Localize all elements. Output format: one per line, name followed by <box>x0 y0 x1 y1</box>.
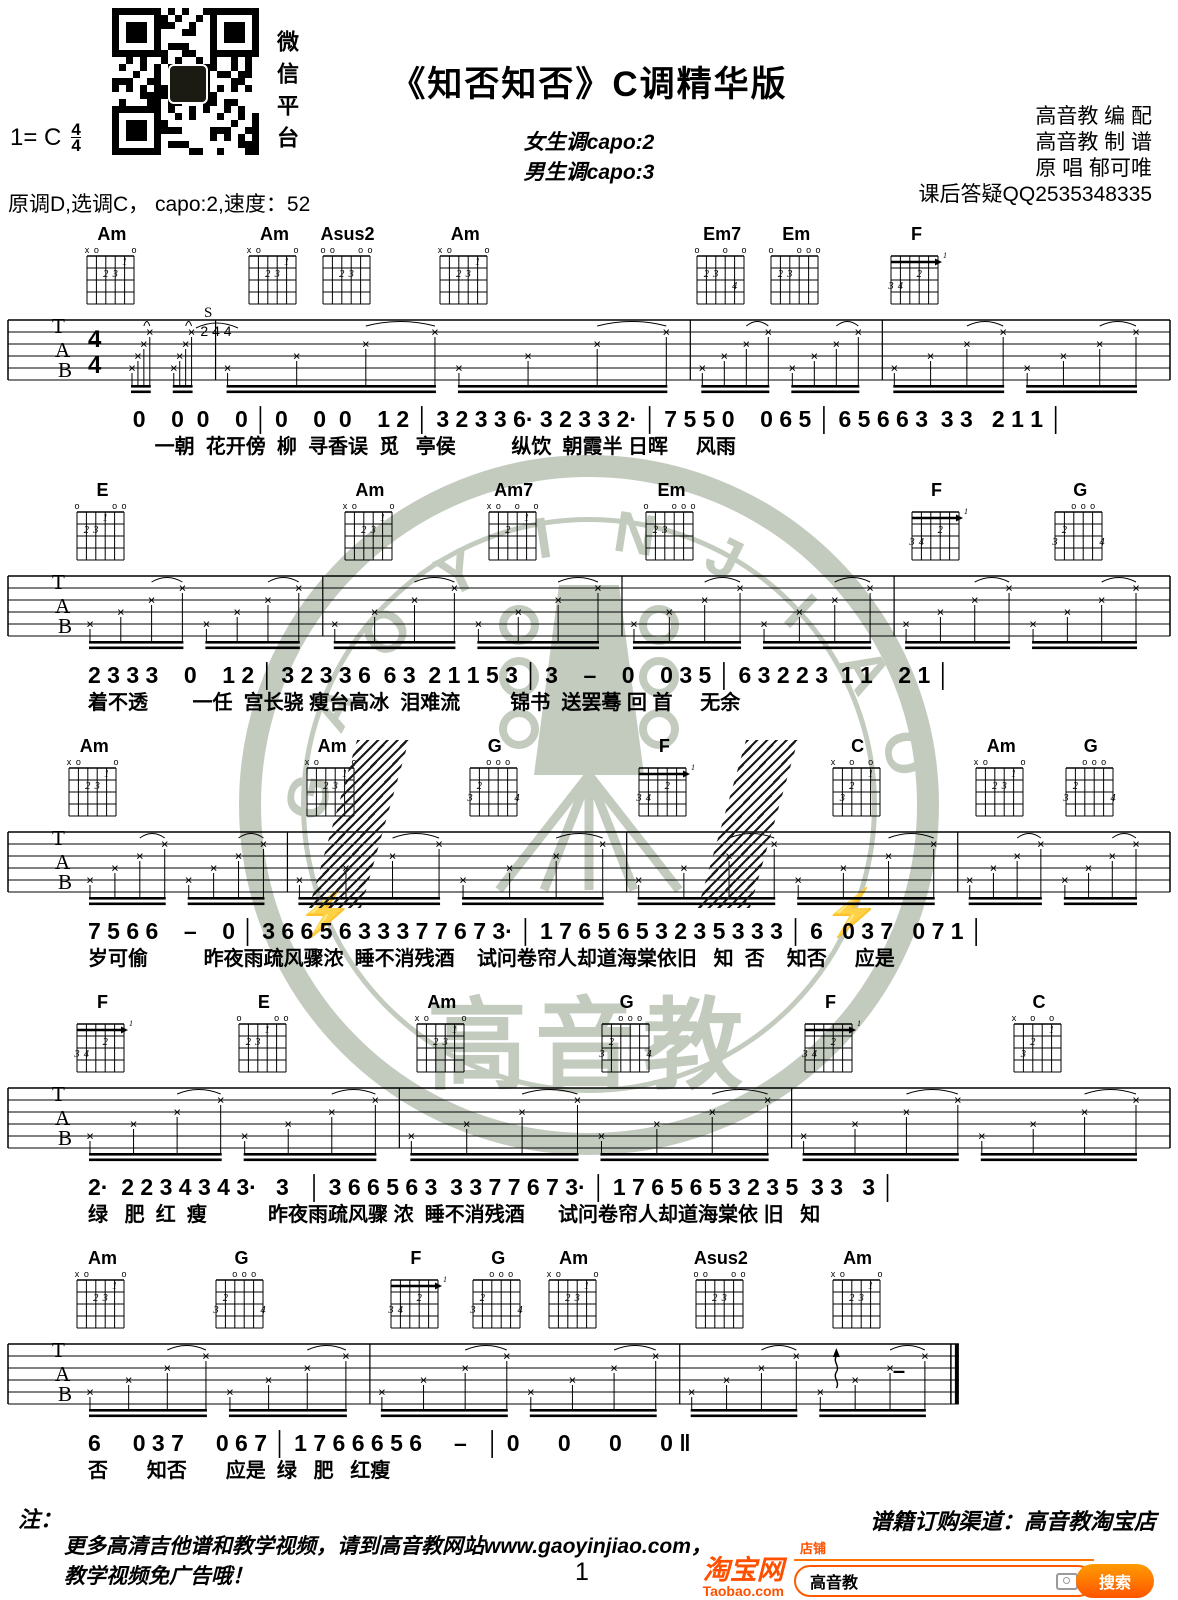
notation-text-row: 0 0 0 0 │ 0 0 0 1 2 │ 3 2 3 3 6· 3 2 3 3… <box>0 404 1178 480</box>
svg-text:o: o <box>627 1013 632 1023</box>
svg-text:4: 4 <box>514 793 520 804</box>
staff-row: TAB×××××××××××××××××××××××× <box>0 1074 1178 1170</box>
svg-text:o: o <box>868 757 873 767</box>
svg-text:o: o <box>256 245 261 255</box>
svg-text:x: x <box>343 501 348 511</box>
search-query: 高音教 <box>810 1569 858 1593</box>
chord-name: E <box>233 992 295 1012</box>
chord-diagram-Am: Amxoo123 <box>339 480 401 571</box>
chord-name: Em7 <box>691 224 753 244</box>
sheet-music-page: GAOYINJIAO ⚡ ⚡ 高音教 微信平台 《知否知否》C调精华版 女生调c… <box>0 0 1178 1600</box>
svg-text:3: 3 <box>93 525 99 536</box>
chord-grid: xoo123 <box>971 756 1031 822</box>
svg-text:3: 3 <box>254 1037 260 1048</box>
svg-text:o: o <box>769 245 774 255</box>
chord-grid: oooo23 <box>766 244 826 310</box>
tab-staff: TAB×××××××××××××××××××××××××××××××× <box>0 562 1178 658</box>
svg-text:o: o <box>367 245 372 255</box>
chord-name: Asus2 <box>690 1248 752 1268</box>
svg-text:o: o <box>1021 757 1026 767</box>
svg-text:o: o <box>618 1013 623 1023</box>
svg-text:4: 4 <box>398 1305 404 1316</box>
chord-diagram-F: F1234 <box>799 992 861 1083</box>
chord-diagram-G: Gooo234 <box>1060 736 1122 827</box>
svg-text:o: o <box>424 1013 429 1023</box>
svg-text:2: 2 <box>505 525 511 536</box>
chord-grid: ooo234 <box>692 244 752 310</box>
chord-diagram-Am: Amxoo123 <box>970 736 1032 827</box>
svg-text:o: o <box>283 1013 288 1023</box>
chord-name: Am <box>243 224 305 244</box>
svg-text:o: o <box>1090 501 1095 511</box>
notation-text-row: 7 5 6 6 – 0 │ 3 6 6 5 6 3 3 3 7 7 6 7 3·… <box>0 916 1178 992</box>
svg-text:o: o <box>682 501 687 511</box>
svg-text:o: o <box>556 1269 561 1279</box>
chord-row: Amxoo123Gooo234F1234Gooo234Amxoo123Asus2… <box>0 1246 1178 1330</box>
svg-text:4: 4 <box>88 326 102 353</box>
svg-text:3: 3 <box>387 1305 393 1316</box>
chord-name: Am <box>411 992 473 1012</box>
chord-diagram-E: Eooo123 <box>71 480 133 571</box>
time-signature: 4 4 <box>71 122 80 153</box>
chord-grid: ooo234 <box>211 1268 271 1334</box>
svg-text:o: o <box>849 757 854 767</box>
chord-diagram-Am: Amxoo123 <box>411 992 473 1083</box>
svg-text:2: 2 <box>917 269 923 280</box>
svg-text:o: o <box>495 501 500 511</box>
svg-text:o: o <box>695 245 700 255</box>
svg-text:o: o <box>816 245 821 255</box>
svg-text:o: o <box>505 757 510 767</box>
chord-diagram-G: Gooo234 <box>467 1248 529 1339</box>
svg-text:x: x <box>486 501 491 511</box>
svg-text:4: 4 <box>1110 793 1116 804</box>
lyrics-line: 一朝 花开傍 柳 寻香误 觅 亭侯 纵饮 朝霞半 日晖 风雨 <box>0 434 1178 460</box>
chord-grid: 1234 <box>800 1012 860 1078</box>
notation-text-row: 2· 2 2 3 4 3 4 3· 3 │ 3 6 6 5 6 3 3 3 7 … <box>0 1172 1178 1248</box>
svg-text:x: x <box>415 1013 420 1023</box>
note-label: 注： <box>18 1502 62 1534</box>
svg-text:x: x <box>830 1269 835 1279</box>
chord-name: Am <box>63 736 125 756</box>
svg-text:o: o <box>75 501 80 511</box>
svg-text:o: o <box>252 1269 257 1279</box>
tab-staff: TAB×××××××××××××××××××××××××××××××× <box>0 818 1178 914</box>
taobao-logo-cn: 淘宝网 <box>703 1557 784 1584</box>
svg-text:o: o <box>723 245 728 255</box>
jianpu-melody-line: 2· 2 2 3 4 3 4 3· 3 │ 3 6 6 5 6 3 3 3 7 … <box>0 1172 1178 1202</box>
chord-grid: xoo123 <box>340 500 400 566</box>
svg-text:x: x <box>974 757 979 767</box>
svg-text:B: B <box>58 1126 72 1150</box>
chord-name: F <box>885 224 947 244</box>
taobao-slogan: 谱籍订购渠道：高音教淘宝店 <box>870 1504 1156 1536</box>
svg-text:3: 3 <box>720 1293 726 1304</box>
svg-text:o: o <box>233 1269 238 1279</box>
tempo-line: 原调D,选调C， capo:2,速度：52 <box>8 188 310 218</box>
svg-text:B: B <box>58 358 72 382</box>
svg-text:2: 2 <box>608 1037 614 1048</box>
chord-diagram-Am7: Am7xooo12 <box>483 480 545 571</box>
svg-text:o: o <box>495 757 500 767</box>
tab-staff: TAB×××××××××××××××××××××××× <box>0 1074 1178 1170</box>
svg-text:3: 3 <box>857 1293 863 1304</box>
chord-diagram-F: F1234 <box>71 992 133 1083</box>
taobao-logo-en: Taobao.com <box>703 1584 784 1598</box>
search-input[interactable]: 高音教 <box>794 1565 1094 1597</box>
svg-text:3: 3 <box>786 269 792 280</box>
svg-text:o: o <box>839 1269 844 1279</box>
svg-text:1: 1 <box>964 507 967 516</box>
chord-diagram-G: Gooo234 <box>210 1248 272 1339</box>
svg-text:o: o <box>122 501 127 511</box>
chord-name: G <box>1049 480 1111 500</box>
svg-text:1: 1 <box>122 257 127 268</box>
chord-name: G <box>210 1248 272 1268</box>
svg-text:o: o <box>485 245 490 255</box>
svg-text:2: 2 <box>361 525 367 536</box>
chord-grid: xoo123 <box>544 1268 604 1334</box>
svg-text:2: 2 <box>323 781 329 792</box>
chord-diagram-C: Cxoo123 <box>827 736 889 827</box>
chord-grid: xoo123 <box>828 1268 888 1334</box>
tab-system-4: F1234Eooo123Amxoo123Gooo234F1234Cxoo123T… <box>0 990 1178 1246</box>
qr-center-logo <box>168 64 208 104</box>
svg-text:o: o <box>1030 1013 1035 1023</box>
svg-text:3: 3 <box>888 281 894 292</box>
svg-text:3: 3 <box>636 793 642 804</box>
svg-text:2: 2 <box>704 269 710 280</box>
svg-text:o: o <box>877 1269 882 1279</box>
svg-text:4: 4 <box>918 537 924 548</box>
svg-text:o: o <box>389 501 394 511</box>
chord-diagram-F: F1234 <box>385 1248 447 1339</box>
svg-text:1: 1 <box>691 763 694 772</box>
svg-text:2: 2 <box>778 269 784 280</box>
chord-name: Am <box>71 1248 133 1268</box>
svg-text:3: 3 <box>1020 1049 1026 1060</box>
svg-text:1: 1 <box>380 513 385 524</box>
svg-text:o: o <box>514 501 519 511</box>
svg-text:T: T <box>52 314 65 338</box>
svg-text:1: 1 <box>103 513 108 524</box>
svg-text:1: 1 <box>868 769 873 780</box>
credit-line: 原 唱 郁可唯 <box>919 156 1152 182</box>
chord-diagram-C: Cxoo123 <box>1008 992 1070 1083</box>
svg-text:2: 2 <box>665 781 671 792</box>
chord-name: Em <box>765 224 827 244</box>
svg-text:4: 4 <box>898 281 904 292</box>
chord-name: C <box>1008 992 1070 1012</box>
svg-text:2: 2 <box>416 1293 422 1304</box>
svg-text:o: o <box>672 501 677 511</box>
footer: 注： 更多高清吉他谱和教学视频，请到高音教网站www.gaoyinjiao.co… <box>0 1498 1178 1600</box>
svg-text:2: 2 <box>223 1293 229 1304</box>
chord-name: Am <box>970 736 1032 756</box>
staff-row: TAB×××××××××××××××××××××××××××××××× <box>0 818 1178 914</box>
svg-text:3: 3 <box>908 537 914 548</box>
svg-text:o: o <box>461 1013 466 1023</box>
svg-text:o: o <box>1082 757 1087 767</box>
taobao-logo: 淘宝网 Taobao.com <box>703 1557 784 1598</box>
svg-text:o: o <box>1072 501 1077 511</box>
chord-diagram-Asus2: Asus2oooo23 <box>690 1248 752 1339</box>
svg-text:3: 3 <box>102 1293 108 1304</box>
chord-diagram-Am: Amxoo123 <box>827 1248 889 1339</box>
svg-text:o: o <box>131 245 136 255</box>
svg-text:4: 4 <box>84 1049 90 1060</box>
svg-text:4: 4 <box>261 1305 267 1316</box>
chord-diagram-Asus2: Asus2oooo23 <box>317 224 379 315</box>
svg-text:B: B <box>58 870 72 894</box>
chord-grid: ooo234 <box>468 1268 528 1334</box>
svg-text:3: 3 <box>466 793 472 804</box>
svg-text:4: 4 <box>732 281 738 292</box>
svg-text:3: 3 <box>213 1305 219 1316</box>
chord-name: G <box>596 992 658 1012</box>
chord-name: Am <box>81 224 143 244</box>
lyrics-line: 岁可偷 昨夜雨疏风骤浓 睡不消残酒 试问卷帘人却道海棠依旧 知 否 知否 应是 <box>0 946 1178 972</box>
svg-text:4: 4 <box>646 1049 652 1060</box>
chord-diagram-Em: Emoooo23 <box>640 480 702 571</box>
svg-text:2: 2 <box>565 1293 571 1304</box>
svg-text:o: o <box>593 1269 598 1279</box>
svg-text:o: o <box>329 245 334 255</box>
svg-text:o: o <box>806 245 811 255</box>
svg-text:x: x <box>546 1269 551 1279</box>
chord-diagram-E: Eooo123 <box>233 992 295 1083</box>
svg-text:o: o <box>113 501 118 511</box>
svg-text:o: o <box>486 757 491 767</box>
svg-text:3: 3 <box>94 781 100 792</box>
chord-name: Am <box>434 224 496 244</box>
chord-row: Amxoo123Amxoo123Asus2oooo23Amxoo123Em7oo… <box>0 222 1178 306</box>
svg-text:x: x <box>830 757 835 767</box>
chord-row: Amxoo123Amxoo123Gooo234F1234Cxoo123Amxoo… <box>0 734 1178 818</box>
svg-text:2: 2 <box>84 525 90 536</box>
jianpu-melody-line: 2 3 3 3 0 1 2 │ 3 2 3 3 6 6 3 2 1 1 5 3 … <box>0 660 1178 690</box>
svg-text:o: o <box>490 1269 495 1279</box>
svg-text:1: 1 <box>584 1281 589 1292</box>
svg-text:o: o <box>740 1269 745 1279</box>
svg-text:4: 4 <box>1100 537 1106 548</box>
svg-text:4: 4 <box>518 1305 524 1316</box>
chord-name: F <box>906 480 968 500</box>
svg-text:2: 2 <box>433 1037 439 1048</box>
chord-diagram-G: Gooo234 <box>596 992 658 1083</box>
chord-name: Am7 <box>483 480 545 500</box>
svg-text:o: o <box>274 1013 279 1023</box>
notation-text-row: 2 3 3 3 0 1 2 │ 3 2 3 3 6 6 3 2 1 1 5 3 … <box>0 660 1178 736</box>
svg-text:o: o <box>637 1013 642 1023</box>
svg-text:o: o <box>731 1269 736 1279</box>
staff-row: TAB×××××××××××××××××××××××××××××××× <box>0 562 1178 658</box>
chord-grid: ooo234 <box>465 756 525 822</box>
svg-text:S: S <box>204 306 212 321</box>
tab-system-5: Amxoo123Gooo234F1234Gooo234Amxoo123Asus2… <box>0 1246 1178 1502</box>
svg-text:4: 4 <box>88 352 102 379</box>
svg-text:o: o <box>114 757 119 767</box>
taobao-search-widget: 店铺 高音教 搜索 <box>794 1538 1154 1598</box>
chord-grid: xooo12 <box>484 500 544 566</box>
svg-text:2: 2 <box>339 269 345 280</box>
shop-tab-rule <box>794 1559 1094 1561</box>
svg-text:B: B <box>58 614 72 638</box>
svg-text:3: 3 <box>573 1293 579 1304</box>
svg-text:o: o <box>94 245 99 255</box>
svg-text:4: 4 <box>646 793 652 804</box>
svg-text:–: – <box>893 1358 905 1383</box>
svg-text:2: 2 <box>480 1293 486 1304</box>
svg-text:2: 2 <box>266 269 272 280</box>
svg-text:o: o <box>352 501 357 511</box>
svg-text:3: 3 <box>662 525 668 536</box>
svg-text:o: o <box>499 1269 504 1279</box>
chord-name: Am <box>827 1248 889 1268</box>
jianpu-melody-line: 6 0 3 7 0 6 7 │ 1 7 6 6 6 5 6 – │ 0 0 0 … <box>0 1428 1178 1458</box>
svg-text:2: 2 <box>1062 525 1068 536</box>
notation-text-row: 6 0 3 7 0 6 7 │ 1 7 6 6 6 5 6 – │ 0 0 0 … <box>0 1428 1178 1504</box>
chord-grid: 1234 <box>634 756 694 822</box>
chord-row: F1234Eooo123Amxoo123Gooo234F1234Cxoo123 <box>0 990 1178 1074</box>
svg-text:o: o <box>294 245 299 255</box>
chord-diagram-F: F1234 <box>633 736 695 827</box>
svg-text:1: 1 <box>943 251 946 260</box>
svg-text:o: o <box>533 501 538 511</box>
svg-text:o: o <box>1092 757 1097 767</box>
svg-text:x: x <box>67 757 72 767</box>
chord-diagram-Am: Amxoo123 <box>434 224 496 315</box>
svg-text:3: 3 <box>1062 793 1068 804</box>
svg-text:o: o <box>508 1269 513 1279</box>
tab-staff: TAB44S2 4 4×××××××××××××××××××××××××××××… <box>0 306 1178 402</box>
chord-grid: xoo123 <box>412 1012 472 1078</box>
svg-text:o: o <box>236 1013 241 1023</box>
svg-text:T: T <box>52 1338 65 1362</box>
svg-text:T: T <box>52 826 65 850</box>
tab-system-2: Eooo123Amxoo123Am7xooo12Emoooo23F1234Goo… <box>0 478 1178 734</box>
lyrics-line: 绿 肥 红 瘦 昨夜雨疏风骤 浓 睡不消残酒 试问卷帘人却道海棠依 旧 知 <box>0 1202 1178 1228</box>
svg-text:3: 3 <box>274 269 280 280</box>
svg-text:3: 3 <box>465 269 471 280</box>
staff-row: TAB××××××××××××××××××××××××– <box>0 1330 1178 1426</box>
jianpu-melody-line: 7 5 6 6 – 0 │ 3 6 6 5 6 3 3 3 7 7 6 7 3·… <box>0 916 1178 946</box>
svg-text:3: 3 <box>712 269 718 280</box>
svg-text:4: 4 <box>812 1049 818 1060</box>
chord-grid: ooo234 <box>597 1012 657 1078</box>
chord-grid: 1234 <box>907 500 967 566</box>
svg-text:2: 2 <box>937 525 943 536</box>
tab-system-1: Amxoo123Amxoo123Asus2oooo23Amxoo123Em7oo… <box>0 222 1178 478</box>
svg-text:2: 2 <box>712 1293 718 1304</box>
svg-text:1: 1 <box>284 257 289 268</box>
taobao-banner: 淘宝网 Taobao.com 店铺 高音教 搜索 <box>703 1538 1154 1598</box>
staff-row: TAB44S2 4 4×××××××××××××××××××××××××××××… <box>0 306 1178 402</box>
svg-text:2: 2 <box>85 781 91 792</box>
key-signature: 1= C 4 4 <box>10 122 81 153</box>
svg-text:1: 1 <box>264 1025 269 1036</box>
svg-text:o: o <box>983 757 988 767</box>
chord-row: Eooo123Amxoo123Am7xooo12Emoooo23F1234Goo… <box>0 478 1178 562</box>
chord-diagram-Am: Amxoo123 <box>243 224 305 315</box>
chord-grid: 1234 <box>72 1012 132 1078</box>
chord-grid: oooo23 <box>691 1268 751 1334</box>
svg-text:o: o <box>358 245 363 255</box>
svg-text:3: 3 <box>802 1049 808 1060</box>
credit-line: 高音教 编 配 <box>919 104 1152 130</box>
svg-text:1: 1 <box>104 769 109 780</box>
jianpu-melody-line: 0 0 0 0 │ 0 0 0 1 2 │ 3 2 3 3 6· 3 2 3 3… <box>0 404 1178 434</box>
chord-name: E <box>71 480 133 500</box>
chord-name: Em <box>640 480 702 500</box>
chord-diagram-Am: Amxoo123 <box>81 224 143 315</box>
chord-name: F <box>633 736 695 756</box>
svg-text:2: 2 <box>477 781 483 792</box>
svg-text:2: 2 <box>1073 781 1079 792</box>
chord-name: G <box>464 736 526 756</box>
svg-text:o: o <box>742 245 747 255</box>
svg-text:2: 2 <box>103 269 109 280</box>
chord-grid: ooo123 <box>234 1012 294 1078</box>
svg-text:x: x <box>85 245 90 255</box>
search-button[interactable]: 搜索 <box>1076 1564 1154 1598</box>
shop-tab[interactable]: 店铺 <box>800 1538 1154 1557</box>
chord-name: G <box>467 1248 529 1268</box>
svg-text:o: o <box>691 501 696 511</box>
svg-text:2: 2 <box>831 1037 837 1048</box>
chord-grid: xoo123 <box>435 244 495 310</box>
svg-text:1: 1 <box>1049 1025 1054 1036</box>
svg-text:2: 2 <box>246 1037 252 1048</box>
svg-text:1: 1 <box>129 1019 132 1028</box>
svg-text:1: 1 <box>443 1275 446 1284</box>
chord-name: F <box>385 1248 447 1268</box>
svg-text:1: 1 <box>475 257 480 268</box>
chord-diagram-G: Gooo234 <box>464 736 526 827</box>
svg-text:2: 2 <box>103 1037 109 1048</box>
chord-grid: xoo123 <box>64 756 124 822</box>
chord-grid: oooo23 <box>318 244 378 310</box>
svg-text:o: o <box>703 1269 708 1279</box>
chord-diagram-Em: Emoooo23 <box>765 224 827 315</box>
svg-text:x: x <box>438 245 443 255</box>
camera-icon[interactable] <box>1056 1573 1078 1590</box>
svg-text:o: o <box>447 245 452 255</box>
svg-text:o: o <box>242 1269 247 1279</box>
credits-block: 高音教 编 配 高音教 制 谱 原 唱 郁可唯 课后答疑QQ2535348335 <box>919 104 1152 208</box>
svg-text:1: 1 <box>857 1019 860 1028</box>
svg-text:o: o <box>122 1269 127 1279</box>
svg-text:3: 3 <box>598 1049 604 1060</box>
svg-text:o: o <box>76 757 81 767</box>
svg-text:2: 2 <box>849 1293 855 1304</box>
svg-text:o: o <box>1101 757 1106 767</box>
key-label: 1= C <box>10 124 61 152</box>
chord-name: Am <box>543 1248 605 1268</box>
svg-text:o: o <box>314 757 319 767</box>
svg-text:1: 1 <box>868 1281 873 1292</box>
lyrics-line: 着不透 一任 宫长骁 瘦台高冰 泪难流 锦书 送罢蓦 回 首 无余 <box>0 690 1178 716</box>
svg-text:2: 2 <box>456 269 462 280</box>
chord-name: F <box>799 992 861 1012</box>
note-line-2: 教学视频免广告哦！ <box>64 1560 253 1590</box>
svg-text:o: o <box>1081 501 1086 511</box>
credit-line: 课后答疑QQ2535348335 <box>919 182 1152 208</box>
svg-text:o: o <box>1049 1013 1054 1023</box>
svg-text:o: o <box>320 245 325 255</box>
chord-diagram-F: F1234 <box>906 480 968 571</box>
chord-diagram-Am: Amxoo123 <box>71 1248 133 1339</box>
